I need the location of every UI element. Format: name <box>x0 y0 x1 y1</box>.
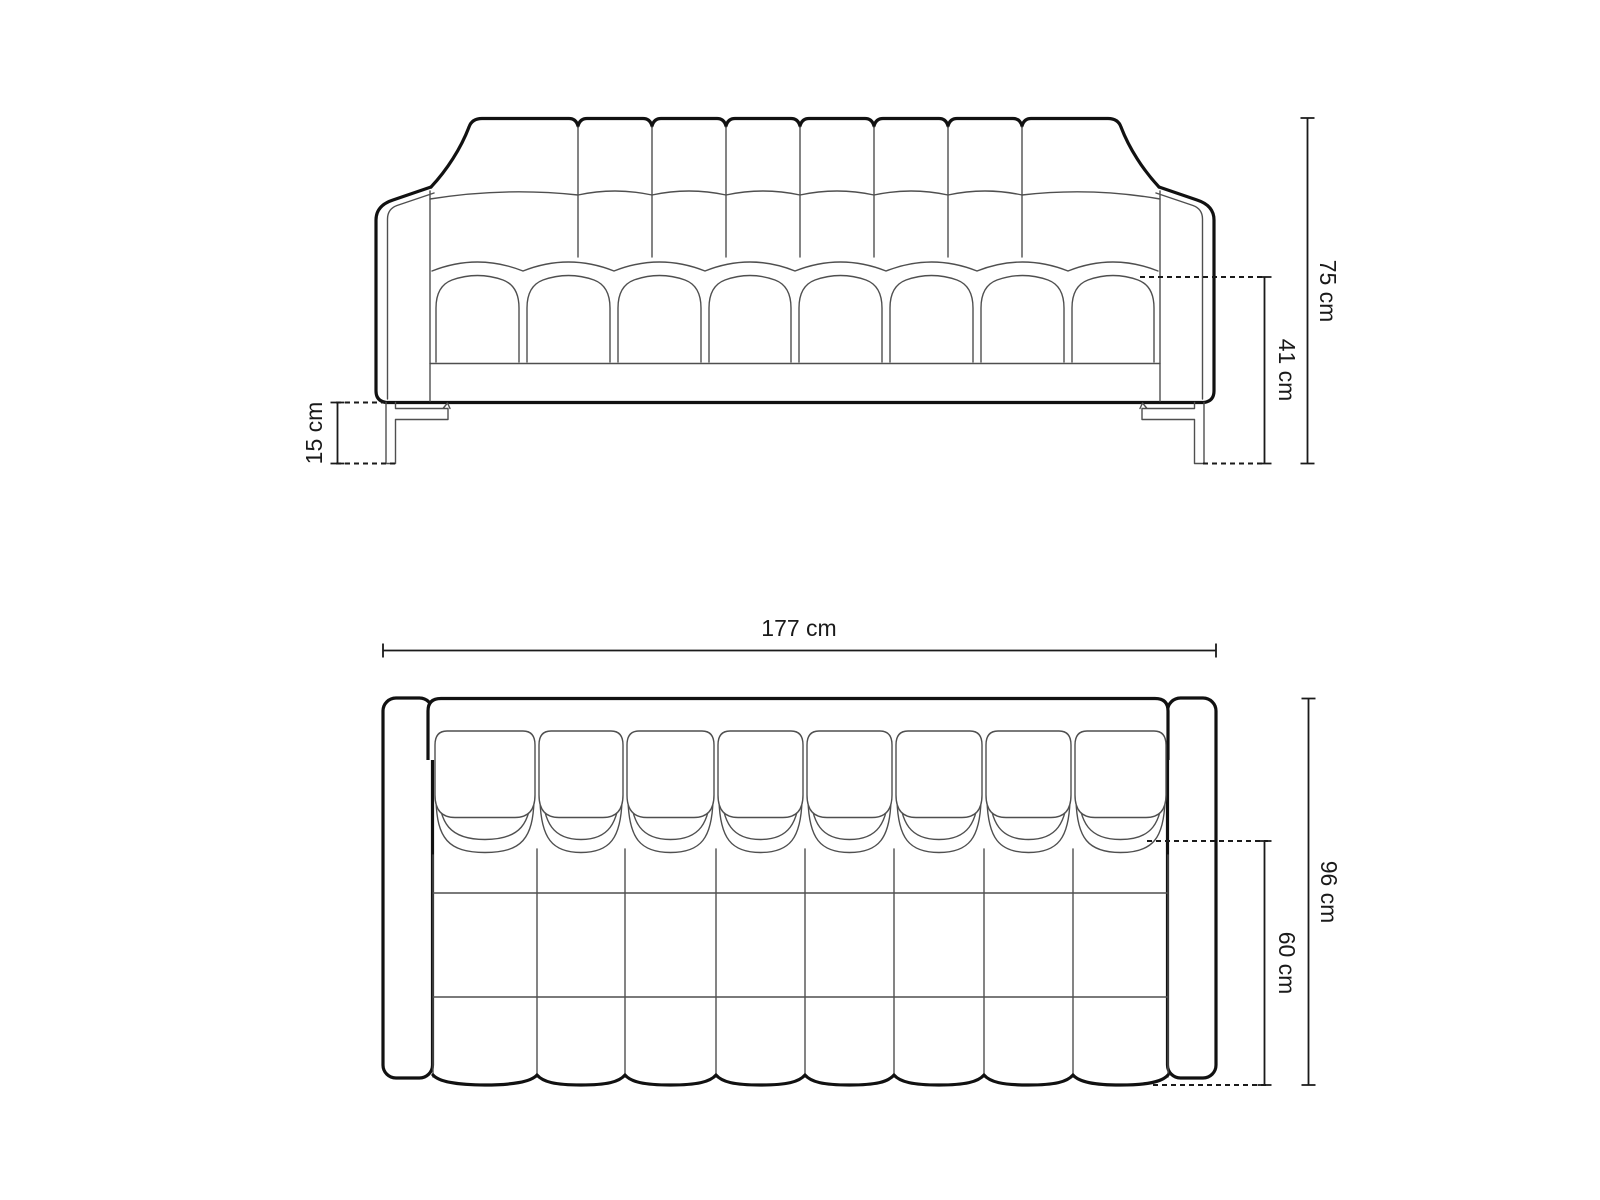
front-back-separators <box>578 127 1022 257</box>
top-right-arm <box>1168 698 1217 1078</box>
dimension-overall-depth: 96 cm <box>1302 699 1342 1086</box>
dimension-seat-depth: 60 cm <box>1258 841 1300 1085</box>
dimension-leg-height: 15 cm <box>301 402 344 465</box>
top-front-bulges <box>433 1075 1168 1085</box>
top-seat-grid <box>433 849 1168 1077</box>
front-seat-cushions <box>436 276 1154 363</box>
front-left-leg <box>386 403 450 464</box>
dimension-label-75cm: 75 cm <box>1315 260 1341 323</box>
dimension-label-177cm: 177 cm <box>761 615 836 641</box>
top-view: 177 cm 60 cm 96 cm <box>383 615 1342 1085</box>
dimension-overall-width: 177 cm <box>383 615 1216 658</box>
top-left-arm <box>383 698 433 1078</box>
dimension-line-177 <box>383 644 1216 658</box>
sofa-dimension-diagram: 15 cm 41 cm 75 cm 177 cm <box>0 0 1600 1200</box>
dimension-line-96 <box>1302 699 1316 1086</box>
front-view: 15 cm 41 cm 75 cm <box>301 118 1341 464</box>
dimension-overall-height: 75 cm <box>1301 118 1341 464</box>
dimension-line-60 <box>1258 841 1272 1085</box>
diagram-canvas: 15 cm 41 cm 75 cm 177 cm <box>0 0 1600 1200</box>
front-back-tuft-line <box>430 191 1160 199</box>
dimension-line-75 <box>1301 118 1315 464</box>
dimension-seat-height: 41 cm <box>1258 277 1300 464</box>
dimension-label-60cm: 60 cm <box>1274 932 1300 995</box>
front-body-outline <box>376 187 1214 403</box>
dimension-label-15cm: 15 cm <box>301 402 327 465</box>
front-projection-dashes <box>336 277 1266 464</box>
front-backrest-outline <box>431 119 1159 188</box>
dimension-line-15 <box>331 403 345 464</box>
top-back-cushions <box>435 731 1166 818</box>
front-seat-crowns <box>432 262 1158 271</box>
dimension-label-41cm: 41 cm <box>1274 339 1300 402</box>
dimension-line-41 <box>1258 277 1272 464</box>
front-right-leg <box>1140 403 1204 464</box>
dimension-label-96cm: 96 cm <box>1316 861 1342 924</box>
front-arm-seams <box>388 191 1203 401</box>
